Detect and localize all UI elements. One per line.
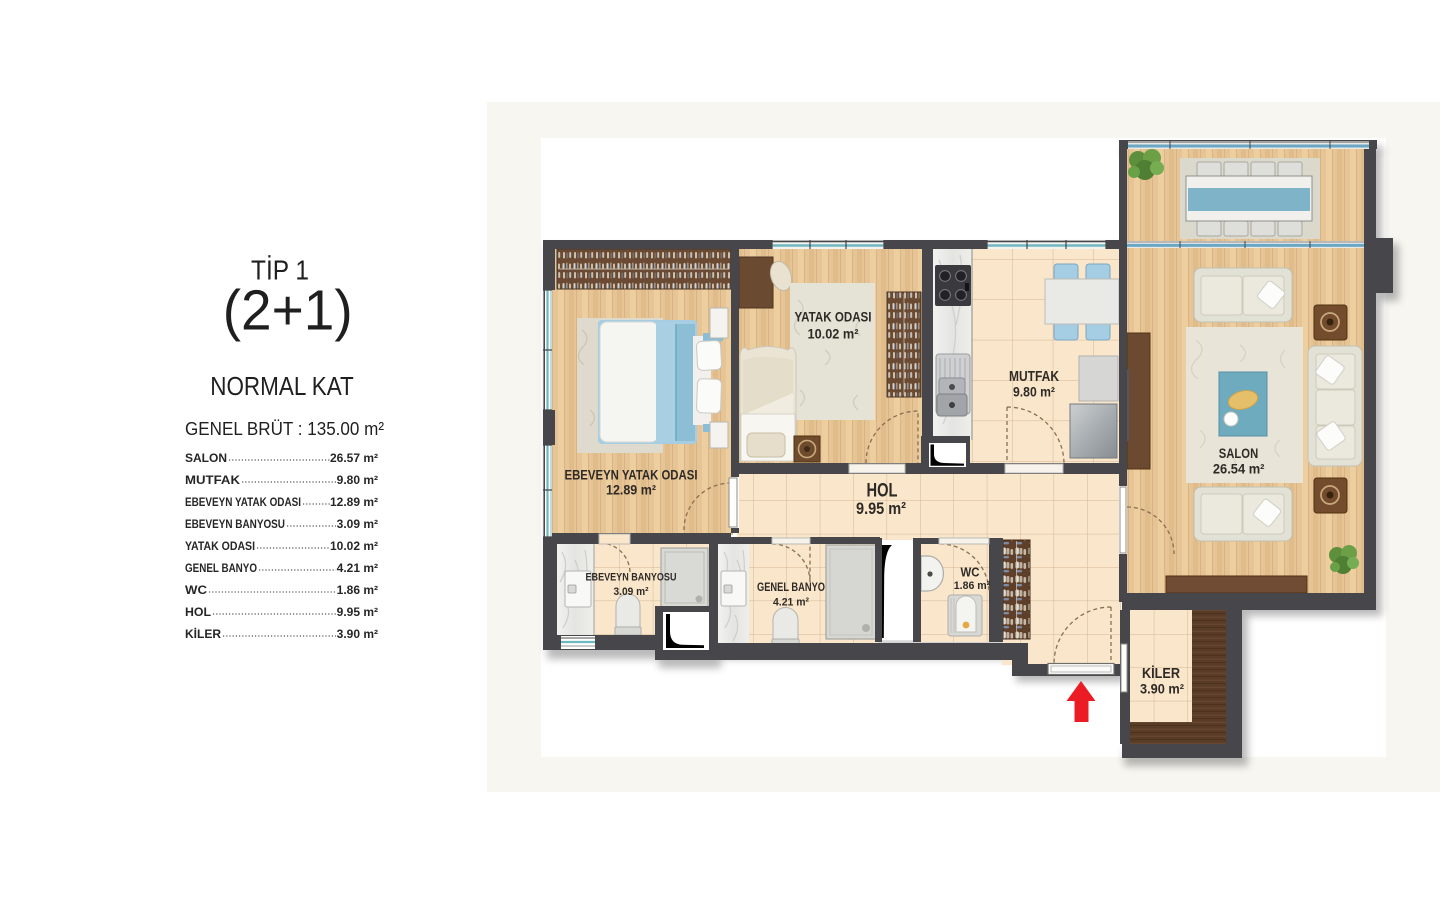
svg-text:MUTFAK: MUTFAK xyxy=(185,473,240,487)
svg-text:WC: WC xyxy=(185,583,207,597)
svg-text:EBEVEYN YATAK ODASI: EBEVEYN YATAK ODASI xyxy=(185,495,301,509)
svg-text:9.95 m²: 9.95 m² xyxy=(337,605,378,619)
svg-text:HOL: HOL xyxy=(867,481,898,502)
svg-text:(2+1): (2+1) xyxy=(223,279,353,343)
svg-text:12.89 m²: 12.89 m² xyxy=(330,495,378,509)
svg-text:9.80 m²: 9.80 m² xyxy=(337,473,378,487)
svg-text:1.86 m²: 1.86 m² xyxy=(954,580,991,592)
svg-text:26.54 m²: 26.54 m² xyxy=(1213,462,1265,477)
svg-text:YATAK ODASI: YATAK ODASI xyxy=(795,310,872,325)
svg-text:EBEVEYN BANYOSU: EBEVEYN BANYOSU xyxy=(586,571,677,583)
svg-text:KİLER: KİLER xyxy=(1142,665,1180,682)
svg-text:EBEVEYN BANYOSU: EBEVEYN BANYOSU xyxy=(185,517,285,531)
svg-text:3.90 m²: 3.90 m² xyxy=(337,627,378,641)
svg-text:3.90 m²: 3.90 m² xyxy=(1140,681,1184,697)
svg-text:26.57 m²: 26.57 m² xyxy=(330,451,378,465)
svg-text:9.80 m²: 9.80 m² xyxy=(1013,385,1055,400)
svg-text:GENEL BANYO: GENEL BANYO xyxy=(185,561,257,575)
svg-text:10.02 m²: 10.02 m² xyxy=(330,539,378,553)
svg-text:WC: WC xyxy=(961,565,981,580)
svg-text:KİLER: KİLER xyxy=(185,626,221,641)
svg-text:10.02 m²: 10.02 m² xyxy=(808,326,859,342)
svg-text:GENEL BANYO: GENEL BANYO xyxy=(757,582,825,594)
svg-text:NORMAL KAT: NORMAL KAT xyxy=(210,371,354,401)
svg-text:1.86 m²: 1.86 m² xyxy=(337,583,378,597)
svg-text:MUTFAK: MUTFAK xyxy=(1009,368,1059,385)
svg-text:9.95 m²: 9.95 m² xyxy=(856,500,906,518)
svg-text:EBEVEYN YATAK ODASI: EBEVEYN YATAK ODASI xyxy=(565,467,698,483)
svg-text:SALON: SALON xyxy=(1219,446,1258,461)
svg-text:4.21 m²: 4.21 m² xyxy=(773,597,809,609)
svg-text:12.89 m²: 12.89 m² xyxy=(606,483,656,498)
svg-text:3.09 m²: 3.09 m² xyxy=(337,517,378,531)
svg-text:4.21 m²: 4.21 m² xyxy=(337,561,378,575)
svg-text:SALON: SALON xyxy=(185,451,227,465)
svg-text:3.09 m²: 3.09 m² xyxy=(614,586,649,598)
svg-text:GENEL BRÜT : 135.00 m²: GENEL BRÜT : 135.00 m² xyxy=(185,418,384,439)
svg-text:YATAK ODASI: YATAK ODASI xyxy=(185,539,255,553)
svg-text:HOL: HOL xyxy=(185,605,211,619)
